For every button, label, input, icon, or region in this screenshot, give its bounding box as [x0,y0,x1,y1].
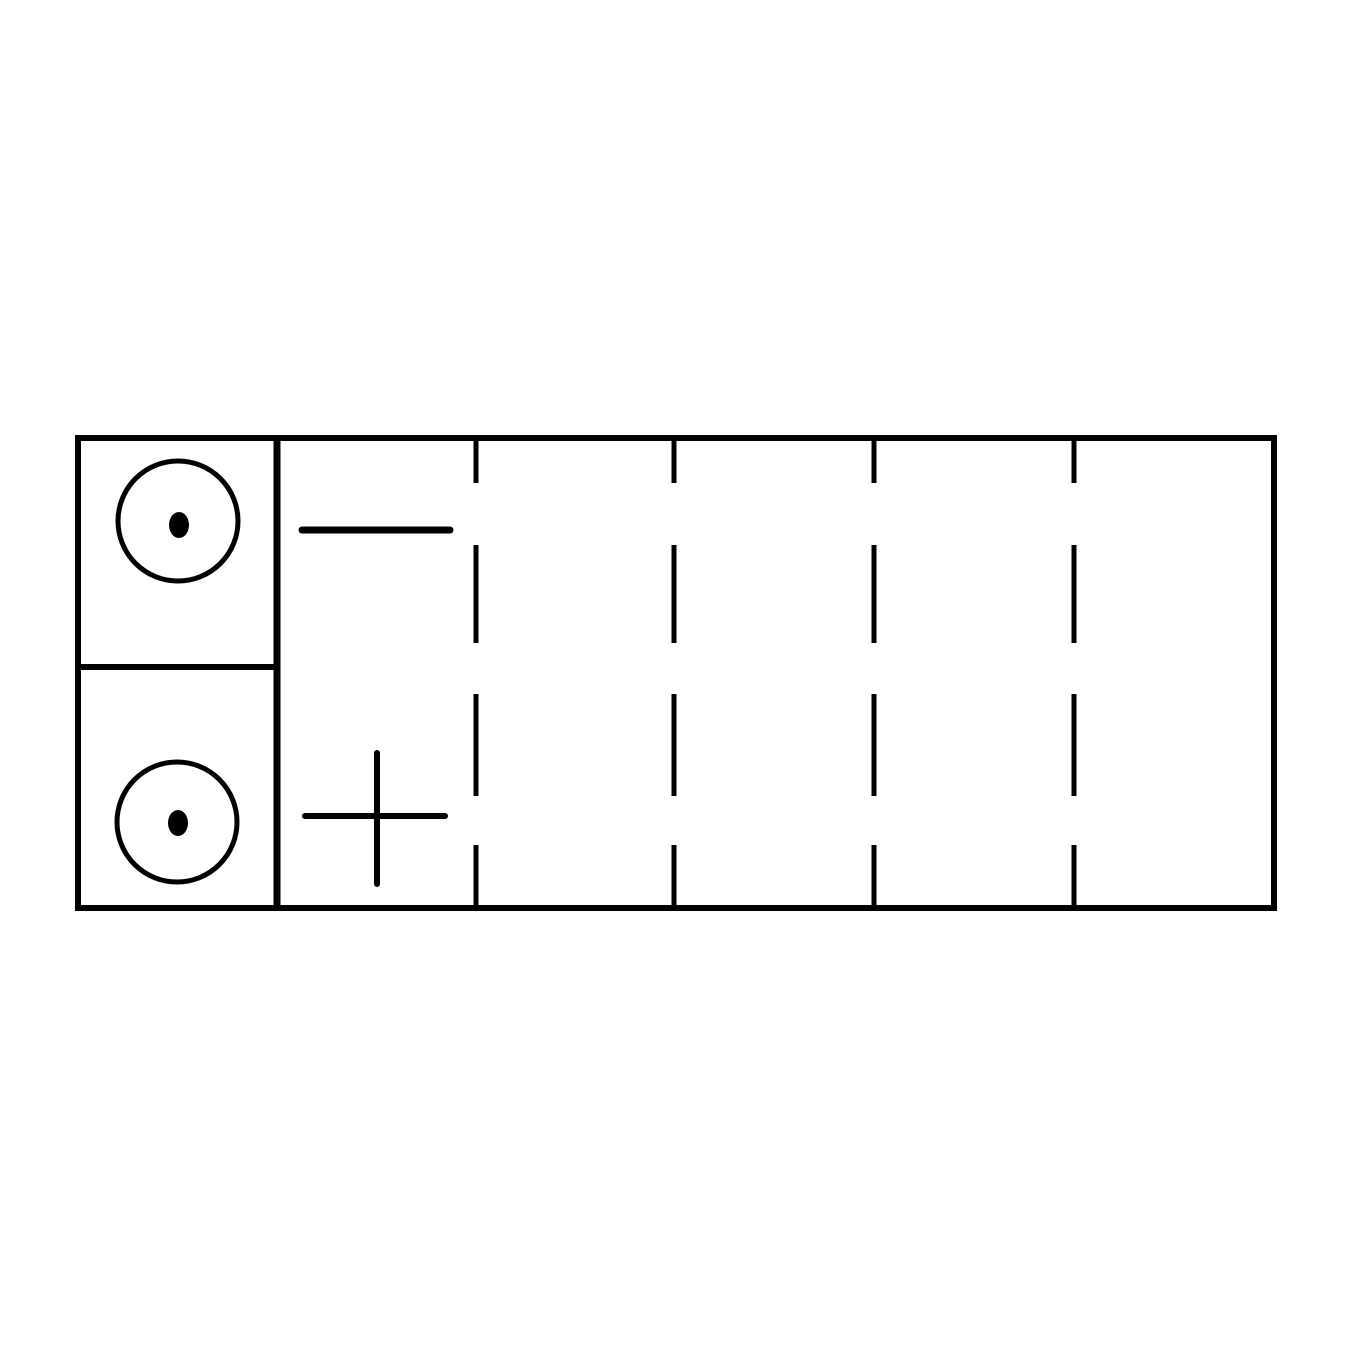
battery-outline [78,438,1274,908]
battery-diagram [0,0,1350,1350]
negative-terminal-dot-icon [169,512,189,538]
positive-terminal-dot-icon [168,810,188,836]
page-canvas [0,0,1350,1350]
